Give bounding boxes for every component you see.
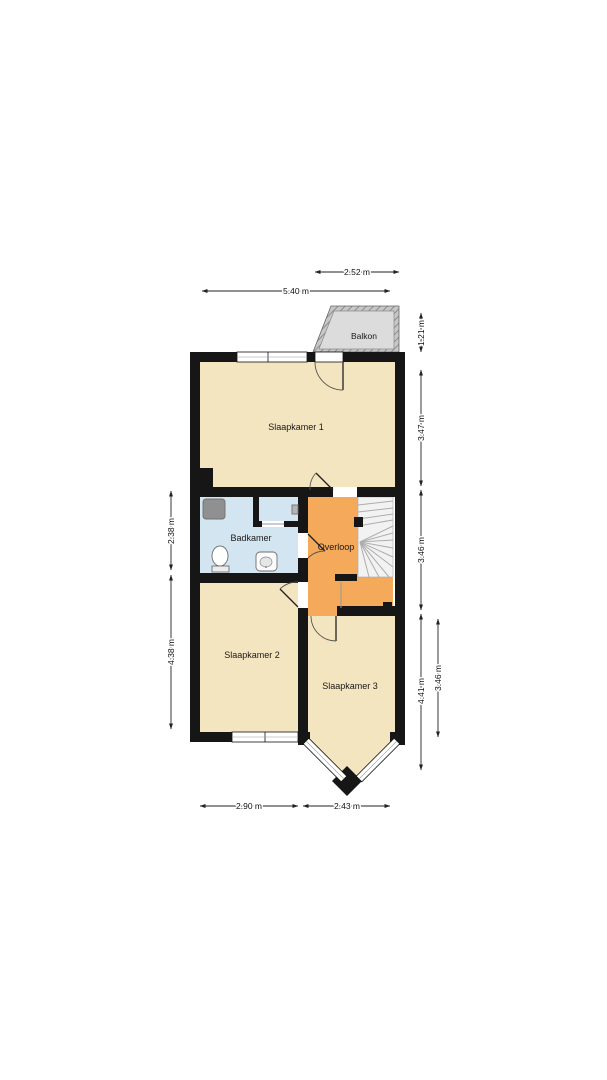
window-bottom <box>232 732 298 742</box>
balcony: Balkon <box>313 306 399 352</box>
svg-text:1.21 m: 1.21 m <box>416 320 426 346</box>
svg-text:2.38 m: 2.38 m <box>166 518 176 544</box>
window-top <box>237 352 307 362</box>
svg-text:5.40 m: 5.40 m <box>283 286 309 296</box>
wall-right <box>395 352 405 742</box>
dimension-right-landing: 3.46 m <box>416 490 426 610</box>
dimension-left-slaapkamer2: 4.38 m <box>166 575 176 729</box>
room-label-slaapkamer-3: Slaapkamer 3 <box>322 681 378 691</box>
svg-text:2.43 m: 2.43 m <box>334 801 360 811</box>
floor-plan: Balkon <box>0 0 607 1080</box>
room-overloop-understairs <box>358 577 393 606</box>
room-label-slaapkamer-1: Slaapkamer 1 <box>268 422 324 432</box>
svg-text:2.90 m: 2.90 m <box>236 801 262 811</box>
door-opening-slaapkamer2 <box>298 582 308 608</box>
room-label-slaapkamer-2: Slaapkamer 2 <box>224 650 280 660</box>
radiator-icon <box>292 505 298 514</box>
room-label-badkamer: Badkamer <box>230 533 271 543</box>
dimension-right-slaapkamer3-outer: 4.41 m <box>416 614 426 770</box>
wall-left <box>190 352 200 742</box>
svg-text:4.38 m: 4.38 m <box>166 639 176 665</box>
svg-text:3.46 m: 3.46 m <box>416 537 426 563</box>
sink-icon <box>256 552 277 571</box>
svg-text:3.47 m: 3.47 m <box>416 415 426 441</box>
dimension-right-balcony: 1.21 m <box>416 313 426 352</box>
wall-landing-stub <box>335 574 357 581</box>
dimension-top-balcony: 2.52 m <box>315 267 399 277</box>
dimension-left-badkamer: 2.38 m <box>166 491 176 570</box>
room-overloop-doorway <box>308 606 337 616</box>
boiler-icon <box>203 499 225 519</box>
dimension-bottom-slaapkamer3: 2.43 m <box>303 801 390 811</box>
dimension-right-slaapkamer3-inner: 3.46 m <box>433 619 443 737</box>
svg-text:4.41 m: 4.41 m <box>416 678 426 704</box>
door-opening-slaapkamer1 <box>333 487 357 497</box>
dimension-top-width: 5.40 m <box>202 286 390 296</box>
svg-text:2.52 m: 2.52 m <box>344 267 370 277</box>
room-label-overloop: Overloop <box>318 542 355 552</box>
partition-door-gap <box>262 521 284 527</box>
dimension-bottom-slaapkamer2: 2.90 m <box>200 801 298 811</box>
wall-middle <box>200 487 395 497</box>
step-block <box>383 602 392 612</box>
dimension-right-slaapkamer1: 3.47 m <box>416 370 426 486</box>
wall-badkamer-bottom <box>200 573 308 583</box>
door-opening-badkamer <box>298 533 308 558</box>
stairs <box>358 497 393 577</box>
svg-text:3.46 m: 3.46 m <box>433 665 443 691</box>
balcony-door-opening <box>315 352 343 362</box>
balcony-label: Balkon <box>351 331 377 341</box>
chimney-block <box>200 468 213 487</box>
wall-stair-stub <box>354 517 363 527</box>
toilet-icon <box>212 546 229 572</box>
